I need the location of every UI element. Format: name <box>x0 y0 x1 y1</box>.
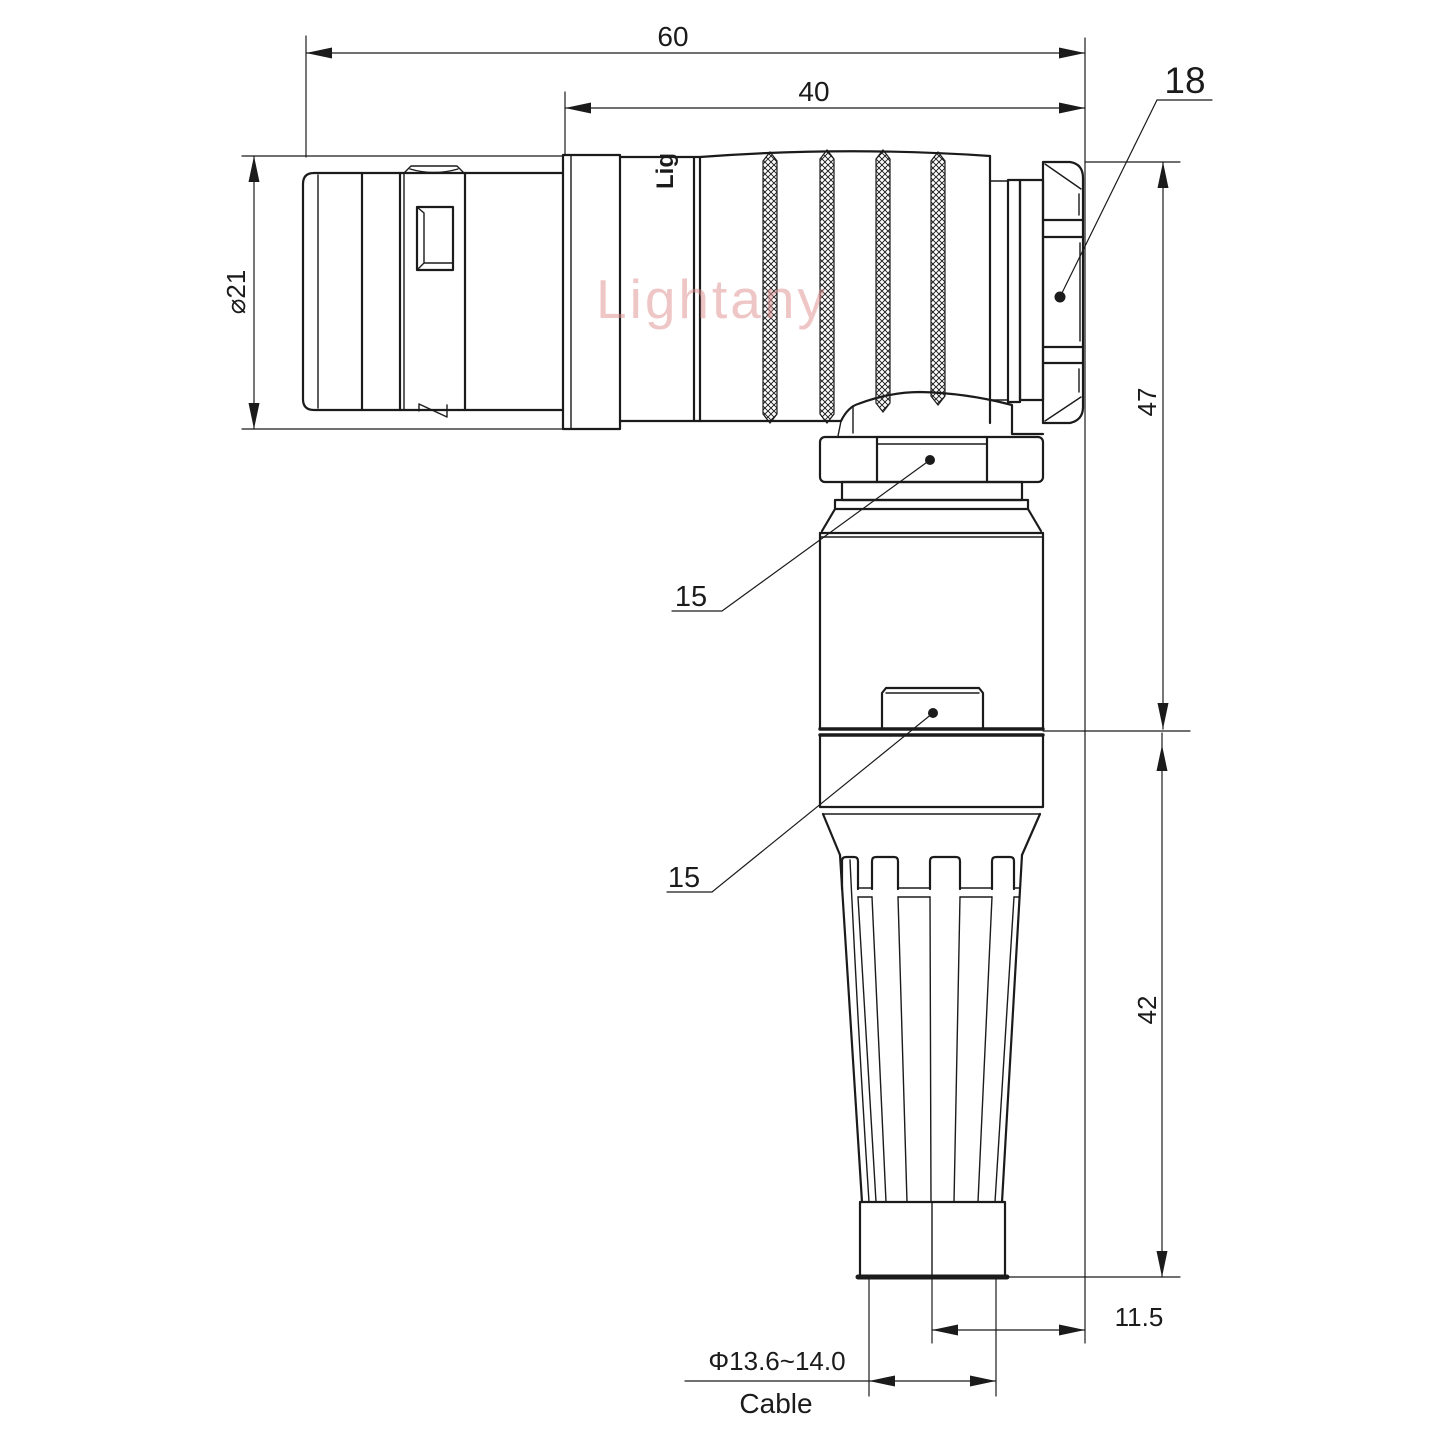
knurl-band <box>876 150 890 412</box>
strain-relief-boot <box>840 855 1022 1202</box>
dimension-47: 47 <box>1085 162 1180 729</box>
dim-47-label: 47 <box>1132 388 1162 417</box>
cable-label: Cable <box>739 1388 812 1419</box>
product-marking-text: Lig <box>652 153 679 189</box>
dimension-annotations: 60 40 ⌀21 47 <box>221 21 1212 1419</box>
dimension-11-5: 11.5 <box>932 1277 1163 1343</box>
cable-diameter-label: Φ13.6~14.0 <box>708 1346 845 1376</box>
main-body <box>820 533 1043 735</box>
connector-vertical-section <box>820 437 1043 1277</box>
dim-60-label: 60 <box>657 21 688 52</box>
callout-15-upper-label: 15 <box>675 581 707 613</box>
washer <box>1020 180 1043 400</box>
connector-dimension-drawing: Lig <box>0 0 1440 1440</box>
dimension-60: 60 <box>306 21 1085 59</box>
watermark-text: Lightany <box>596 268 828 330</box>
plug-barrel <box>303 166 563 417</box>
dim-40-label: 40 <box>798 76 829 107</box>
dimension-42: 42 <box>1005 731 1190 1277</box>
callout-18: 18 <box>1055 60 1213 303</box>
dimension-40: 40 <box>565 76 1085 114</box>
dim-11-5-label: 11.5 <box>1115 1302 1164 1332</box>
neck <box>822 482 1041 531</box>
callout-15-lower-label: 15 <box>668 862 700 894</box>
technical-drawing-sheet: Lig <box>0 0 1440 1440</box>
cable-ferrule <box>858 1202 1007 1277</box>
dia-21-label: ⌀21 <box>221 270 251 315</box>
callout-18-label: 18 <box>1164 60 1205 101</box>
rear-flange <box>1008 180 1020 402</box>
dim-42-label: 42 <box>1132 996 1162 1025</box>
knurl-band <box>931 152 945 405</box>
lower-body <box>820 735 1043 855</box>
rear-end-stack <box>990 162 1083 423</box>
keying-window <box>417 207 453 270</box>
dimension-cable: Φ13.6~14.0 Cable <box>685 1277 996 1419</box>
dimension-dia21: ⌀21 <box>221 156 563 429</box>
